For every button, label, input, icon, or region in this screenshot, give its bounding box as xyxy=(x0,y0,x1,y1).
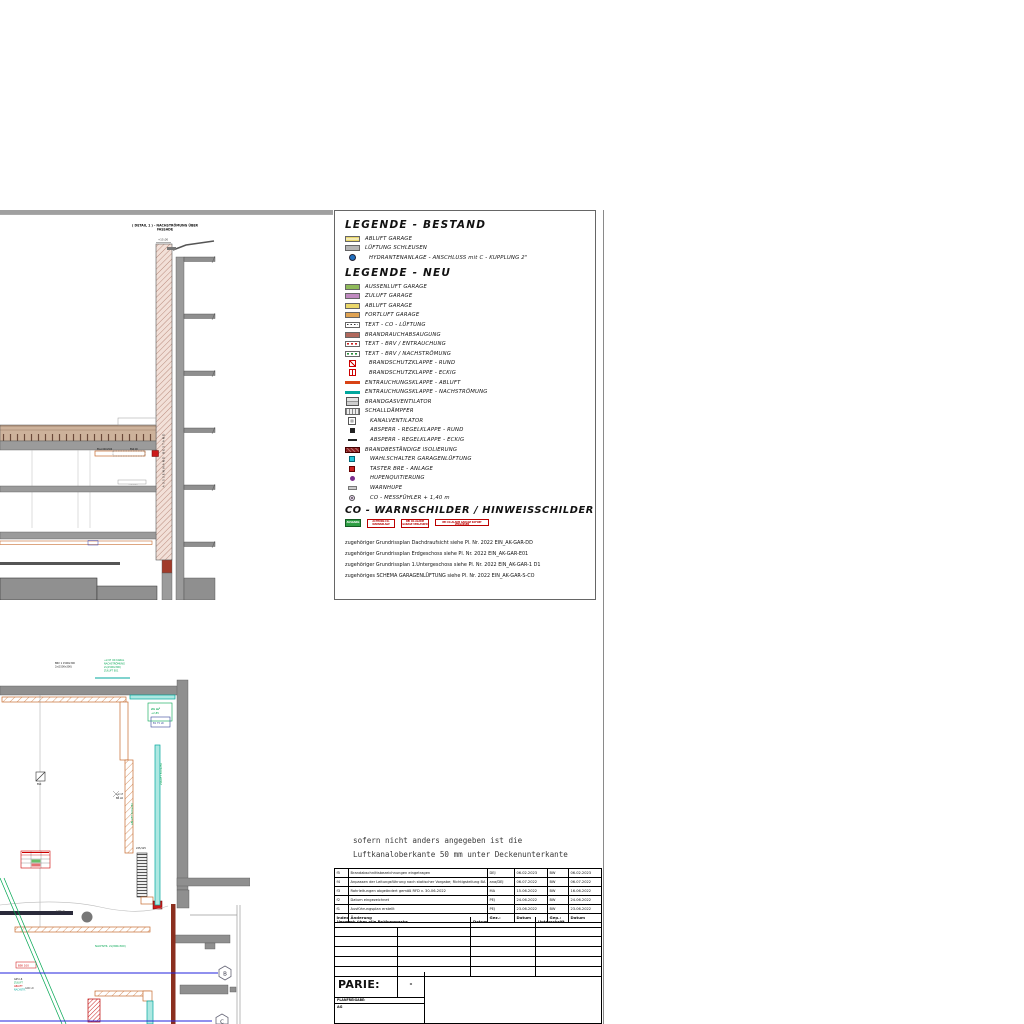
legend-bestand-title: LEGENDE - BESTAND xyxy=(345,219,591,231)
legend-item: BRANDRAUCHABSAUGUNG xyxy=(345,330,591,340)
duct-run-lower xyxy=(0,541,152,546)
top-sheet-strip xyxy=(0,210,333,214)
absperrklappe-rund-icon xyxy=(350,428,355,433)
legend-item: KANALVENTILATOR xyxy=(345,416,591,426)
legend-item: CO - MESSFÜHLER + 1,40 m xyxy=(345,493,591,503)
legend-item: BRANDBESTÄNDIGE ISOLIERUNG xyxy=(345,445,591,455)
svg-text:225/125: 225/125 xyxy=(136,847,146,850)
warnhupe-icon xyxy=(348,486,357,490)
svg-text:G08 LR: G08 LR xyxy=(56,910,65,913)
ag-label: AG xyxy=(335,1004,424,1023)
text-co-swatch xyxy=(345,322,360,328)
legend-item: ENTRAUCHUNGSKLAPPE - NACHSTRÖMUNG xyxy=(345,387,591,397)
svg-text:+2,85: +2,85 xyxy=(151,711,159,715)
legend-item: FORTLUFT GARAGE xyxy=(345,311,591,321)
wahlschalter-icon xyxy=(349,456,355,462)
taster-icon xyxy=(349,466,355,472)
check-vermerk-header: Unterschrift xyxy=(535,917,601,927)
legend-item: BRANDGASVENTILATOR xyxy=(345,397,591,407)
legend-item: ABSPERR - REGELKLAPPE - ECKIG xyxy=(345,435,591,445)
schleusen-swatch xyxy=(345,245,360,251)
slab-stubs xyxy=(184,256,215,600)
zuluft-swatch xyxy=(345,293,360,299)
check-datum-header: Datum xyxy=(470,917,535,927)
reference-line: zugehöriger Grundrissplan 1.Untergeschos… xyxy=(345,562,591,573)
title-block: f5Brandabschnittsbezeichnungen eingetrag… xyxy=(334,868,602,1024)
svg-text:BSK 100: BSK 100 xyxy=(18,964,29,968)
section-drawing: ( DETAIL 1 ) - NACHSTRÖMUNG ÜBER FASSADE… xyxy=(0,210,333,600)
foundation-mid xyxy=(97,586,157,600)
drawing-sheet: ( DETAIL 1 ) - NACHSTRÖMUNG ÜBER FASSADE… xyxy=(0,0,1024,1024)
svg-text:2x(1500x300): 2x(1500x300) xyxy=(55,666,72,669)
legend-item: ENTRAUCHUNGSKLAPPE - ABLUFT xyxy=(345,378,591,388)
reference-line: zugehöriges SCHEMA GARAGENLÜFTUNG siehe … xyxy=(345,573,591,584)
check-table-body xyxy=(335,927,601,977)
partie-label: PARIE: xyxy=(335,972,397,998)
partie-block: PARIE: - xyxy=(335,972,424,997)
planfreigabe-label: PLANFREIGABE: xyxy=(335,997,424,1004)
svg-text:B: B xyxy=(223,972,227,978)
general-note: sofern nicht anders angegeben ist die Lu… xyxy=(353,834,568,862)
floor-slab-2 xyxy=(0,486,156,492)
svg-text:C: C xyxy=(220,1020,224,1024)
legend-item: HUPENQUITIERUNG xyxy=(345,474,591,484)
brandschutzklappe-eckig-icon xyxy=(349,369,356,376)
svg-text:21 m²: 21 m² xyxy=(151,707,161,711)
co-sign-green: AUSGANG xyxy=(345,519,361,527)
fortluft-swatch xyxy=(345,312,360,318)
brv-entrauchung-swatch xyxy=(345,341,360,347)
sheet-edge-line xyxy=(603,210,604,1024)
svg-text:BSK: BSK xyxy=(37,783,42,786)
wall-red-segment xyxy=(162,560,172,573)
reference-line: zugehöriger Grundrissplan Dachdraufsicht… xyxy=(345,540,591,551)
grid-line-C: C xyxy=(0,1014,228,1024)
svg-text:G06 LR: G06 LR xyxy=(25,987,34,990)
note-line-2: Luftkanaloberkante 50 mm unter Deckenunt… xyxy=(353,848,568,862)
concrete-wall xyxy=(176,257,184,600)
legend-item: BRANDSCHUTZKLAPPE - ECKIG xyxy=(345,368,591,378)
svg-text:EK-A 600x300: EK-A 600x300 xyxy=(97,448,113,451)
legend-neu-title: LEGENDE - NEU xyxy=(345,267,591,279)
damper-symbol: BSK xyxy=(36,695,45,927)
abluft-bestand-swatch xyxy=(345,236,360,242)
wall-vertical-label: AUSSENWAND BESTAND xyxy=(162,433,166,488)
legend-item: AUSSENLUFT GARAGE xyxy=(345,282,591,292)
svg-text:NACHSTR. 2x(800x300): NACHSTR. 2x(800x300) xyxy=(95,944,126,948)
note-line-1: sofern nicht anders angegeben ist die xyxy=(353,834,568,848)
reference-notes: zugehöriger Grundrissplan Dachdraufsicht… xyxy=(345,540,591,583)
title-block-right-cell xyxy=(424,972,601,1023)
hydrant-icon xyxy=(349,254,356,261)
svg-text:ABLUFT 500x250: ABLUFT 500x250 xyxy=(130,803,134,825)
abluft-swatch xyxy=(345,303,360,309)
brandrauch-swatch xyxy=(345,332,360,338)
entrauchungsklappe-abluft-swatch xyxy=(345,381,360,384)
green-diagonal-lines xyxy=(0,878,66,1024)
shaft-red-hatch xyxy=(88,999,100,1022)
section-title-line2: FASSADE xyxy=(157,228,173,232)
kanalventilator-icon xyxy=(348,417,356,425)
floor-slab-3 xyxy=(0,532,156,539)
legend-item: ZULUFT GARAGE xyxy=(345,291,591,301)
duct-schedule-mini-table xyxy=(21,851,50,868)
legend-item: WARNHUPE xyxy=(345,483,591,493)
legend-panel: LEGENDE - BESTAND ABLUFT GARAGE LÜFTUNG … xyxy=(334,210,596,600)
roof-flashing xyxy=(173,241,214,250)
legend-item: TEXT - CO - LÜFTUNG xyxy=(345,320,591,330)
legend-item: LÜFTUNG SCHLEUSEN xyxy=(345,244,591,254)
aussenluft-swatch xyxy=(345,284,360,290)
svg-text:B1 75 LR: B1 75 LR xyxy=(153,722,164,725)
co-sign-red-2: BEI CO-ALARM GARAGE VERLASSEN xyxy=(401,519,429,528)
svg-text:ZULUFT 500x250: ZULUFT 500x250 xyxy=(159,762,163,785)
co-sign-row: AUSGANG ACHTUNG CO-WARNANLAGE BEI CO-ALA… xyxy=(345,519,591,533)
area-label-box: 21 m² +2,85 B1 75 LR xyxy=(148,703,172,727)
schalldaempfer-swatch xyxy=(345,408,360,415)
svg-text:ZULUFT E01: ZULUFT E01 xyxy=(104,670,119,673)
hupenquittierung-icon xyxy=(350,476,355,481)
legend-item: SCHALLDÄMPFER xyxy=(345,407,591,417)
co-messfuehler-icon xyxy=(349,495,355,501)
svg-text:BSK 90: BSK 90 xyxy=(130,448,138,451)
svg-text:+2,17: +2,17 xyxy=(116,793,124,796)
legend-item: WAHLSCHALTER GARAGENLÜFTUNG xyxy=(345,454,591,464)
legend-item: TEXT - BRV / NACHSTRÖMUNG xyxy=(345,349,591,359)
brandschutzklappe-rund-icon xyxy=(349,360,356,367)
floor-plan-drawing: BRV 1 1500x300 2x(1500x300) +2,97 OK KAN… xyxy=(0,655,250,1024)
absperrklappe-eckig-icon xyxy=(348,439,357,441)
co-sign-red-1: ACHTUNG CO-WARNANLAGE xyxy=(367,519,395,528)
brandgasventilator-icon xyxy=(346,397,359,406)
reference-line: zugehöriger Grundrissplan Erdgeschoss si… xyxy=(345,551,591,562)
column-circle xyxy=(82,912,93,923)
legend-item: TEXT - BRV / ENTRAUCHUNG xyxy=(345,339,591,349)
revision-table: f5Brandabschnittsbezeichnungen eingetrag… xyxy=(335,869,601,923)
foundation-left xyxy=(0,578,97,600)
partie-value: - xyxy=(397,972,424,998)
legend-item: ABLUFT GARAGE xyxy=(345,234,591,244)
plan-top-annotations: BRV 1 1500x300 2x(1500x300) +2,97 OK KAN… xyxy=(55,659,130,678)
plan-outline xyxy=(190,905,240,1024)
firewall-red xyxy=(171,904,176,1024)
svg-text:BR LR: BR LR xyxy=(116,797,123,800)
paver-slab xyxy=(0,425,156,441)
level-marker: +15,00 xyxy=(158,238,169,242)
legend-item: ABSPERR - REGELKLAPPE - RUND xyxy=(345,426,591,436)
check-title: Vermerk über alle Prüfvermerke xyxy=(335,917,470,927)
legend-item: HYDRANTENANLAGE - ANSCHLUSS mit C - KUPP… xyxy=(345,253,591,263)
svg-text:NACHSTR.: NACHSTR. xyxy=(14,989,26,992)
brv-nachstroemung-swatch xyxy=(345,351,360,357)
isolierung-swatch xyxy=(345,447,360,453)
co-sign-red-wide: BEI CO-ALARM GARAGE SOFORT VERLASSEN xyxy=(435,519,489,526)
duct-run-mid: 400x200 xyxy=(118,480,146,486)
entrauchungsklappe-nachstroemung-swatch xyxy=(345,391,360,394)
co-warnschilder-title: CO - WARNSCHILDER / HINWEISSCHILDER xyxy=(345,505,591,516)
legend-item: ABLUFT GARAGE xyxy=(345,301,591,311)
dark-beam xyxy=(0,562,120,565)
legend-item: TASTER BRE - ANLAGE xyxy=(345,464,591,474)
existing-wall-hatch xyxy=(156,244,172,560)
legend-item: BRANDSCHUTZKLAPPE - RUND xyxy=(345,359,591,369)
